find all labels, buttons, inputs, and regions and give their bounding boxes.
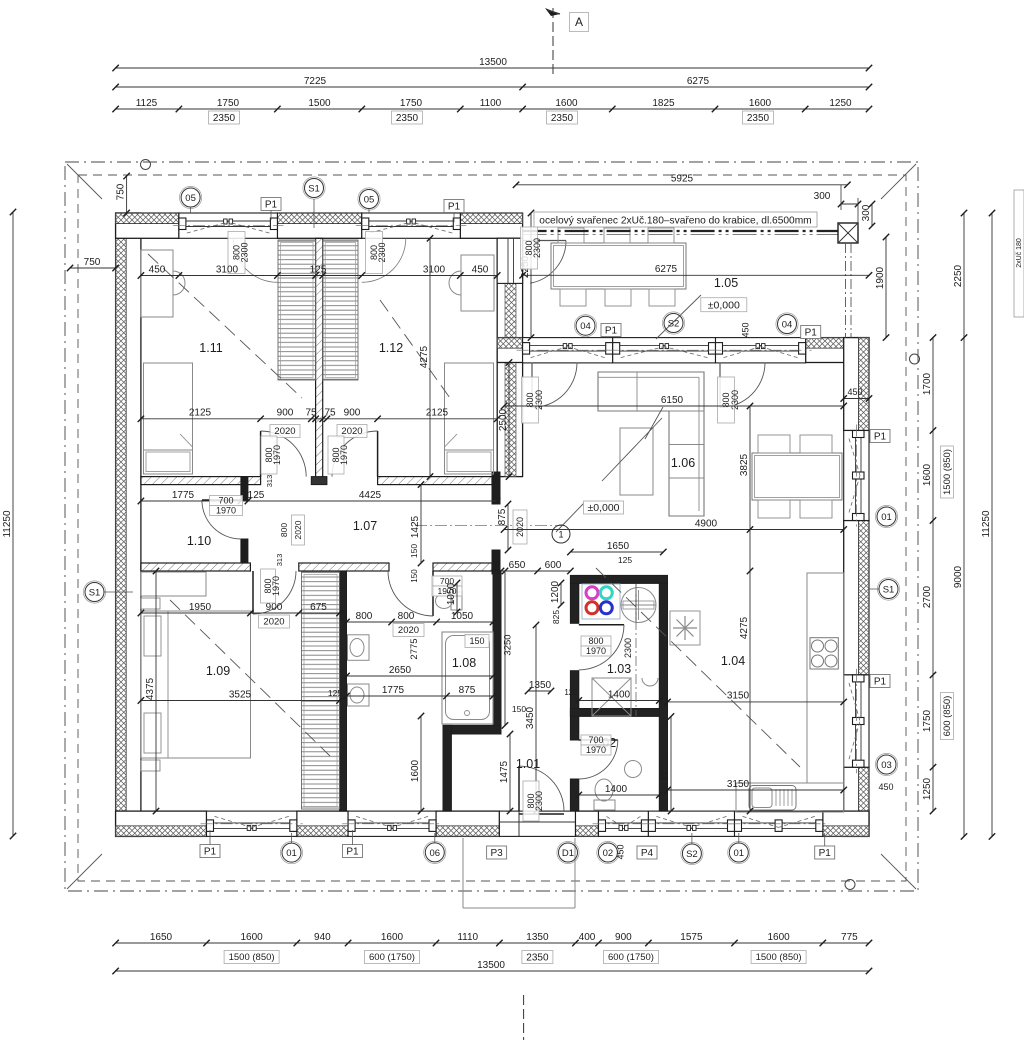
svg-text:2300: 2300 — [534, 791, 544, 811]
svg-text:P1: P1 — [874, 432, 887, 443]
svg-text:1750: 1750 — [922, 709, 933, 732]
svg-text:S1: S1 — [308, 183, 320, 194]
svg-text:150: 150 — [469, 636, 484, 646]
svg-text:1970: 1970 — [271, 576, 281, 596]
svg-text:1050: 1050 — [451, 611, 474, 622]
svg-text:1250: 1250 — [922, 777, 933, 800]
svg-text:05: 05 — [364, 194, 375, 205]
svg-text:450: 450 — [878, 782, 893, 792]
svg-text:2300: 2300 — [240, 242, 250, 262]
svg-text:900: 900 — [344, 408, 361, 419]
svg-text:2350: 2350 — [396, 113, 419, 124]
svg-text:1.07: 1.07 — [353, 519, 377, 533]
svg-text:P1: P1 — [819, 848, 832, 859]
svg-text:1775: 1775 — [172, 490, 195, 501]
svg-text:6275: 6275 — [655, 264, 678, 275]
svg-text:2300: 2300 — [623, 638, 633, 658]
svg-text:1825: 1825 — [652, 98, 675, 109]
svg-text:P1: P1 — [346, 847, 359, 858]
svg-text:1.11: 1.11 — [199, 341, 222, 355]
svg-text:1750: 1750 — [400, 98, 423, 109]
svg-text:1500 (850): 1500 (850) — [229, 952, 275, 963]
svg-text:775: 775 — [841, 932, 858, 943]
svg-text:01: 01 — [881, 512, 892, 523]
svg-text:1110: 1110 — [457, 932, 478, 943]
svg-text:13500: 13500 — [477, 960, 505, 971]
svg-text:1600: 1600 — [555, 98, 578, 109]
svg-text:150: 150 — [410, 569, 419, 583]
svg-text:P4: P4 — [641, 848, 654, 859]
svg-text:700: 700 — [218, 496, 233, 506]
svg-text:450: 450 — [741, 322, 751, 337]
svg-text:2700: 2700 — [922, 585, 933, 608]
svg-text:1.03: 1.03 — [607, 662, 631, 676]
svg-text:2125: 2125 — [189, 408, 212, 419]
svg-text:1970: 1970 — [586, 646, 606, 656]
svg-text:125: 125 — [310, 264, 327, 275]
svg-text:600: 600 — [545, 560, 562, 571]
svg-text:3150: 3150 — [727, 691, 750, 702]
svg-text:1700: 1700 — [922, 372, 933, 395]
svg-text:875: 875 — [497, 508, 508, 525]
svg-text:2500: 2500 — [498, 408, 509, 431]
svg-text:1200: 1200 — [550, 580, 561, 603]
svg-text:S2: S2 — [668, 318, 680, 329]
svg-text:75: 75 — [305, 408, 317, 419]
svg-text:600 (850): 600 (850) — [942, 696, 953, 737]
svg-text:A: A — [575, 15, 583, 29]
svg-text:1600: 1600 — [922, 463, 933, 486]
svg-text:1425: 1425 — [410, 515, 421, 538]
svg-text:1.08: 1.08 — [452, 656, 476, 670]
svg-text:6150: 6150 — [661, 395, 684, 406]
svg-text:3525: 3525 — [229, 689, 252, 700]
svg-text:1900: 1900 — [875, 266, 886, 289]
svg-text:2350: 2350 — [526, 952, 549, 963]
svg-text:1600: 1600 — [410, 759, 421, 782]
svg-text:4375: 4375 — [145, 677, 156, 700]
svg-text:3100: 3100 — [216, 264, 239, 275]
svg-text:P1: P1 — [204, 847, 217, 858]
svg-text:313: 313 — [265, 475, 274, 488]
svg-text:825: 825 — [551, 610, 561, 624]
svg-text:1.01: 1.01 — [516, 757, 540, 771]
svg-text:1.10: 1.10 — [187, 534, 211, 548]
svg-text:1.05: 1.05 — [714, 276, 738, 290]
svg-text:125: 125 — [248, 490, 265, 501]
svg-text:800: 800 — [588, 636, 603, 646]
svg-text:1350: 1350 — [529, 680, 552, 691]
svg-text:04: 04 — [782, 319, 793, 330]
svg-text:2300: 2300 — [534, 390, 544, 410]
svg-text:6275: 6275 — [687, 76, 710, 87]
svg-text:2020: 2020 — [398, 625, 419, 636]
svg-text:1100: 1100 — [480, 98, 502, 109]
svg-text:875: 875 — [459, 685, 476, 696]
svg-text:1.09: 1.09 — [206, 664, 230, 678]
svg-text:1650: 1650 — [607, 541, 630, 552]
svg-text:1500 (850): 1500 (850) — [756, 952, 802, 963]
svg-text:2350: 2350 — [213, 113, 236, 124]
svg-text:03: 03 — [881, 760, 892, 771]
svg-text:7225: 7225 — [304, 76, 327, 87]
svg-text:2650: 2650 — [389, 665, 412, 676]
svg-text:1725: 1725 — [660, 758, 671, 781]
svg-text:±0,000: ±0,000 — [708, 299, 740, 311]
svg-text:13500: 13500 — [479, 57, 507, 68]
svg-text:900: 900 — [277, 408, 294, 419]
svg-text:1500 (850): 1500 (850) — [942, 449, 953, 495]
svg-text:1970: 1970 — [216, 506, 236, 516]
svg-text:1600: 1600 — [240, 932, 263, 943]
svg-text:450: 450 — [472, 264, 489, 275]
svg-text:600 (1750): 600 (1750) — [608, 952, 654, 963]
svg-text:9000: 9000 — [953, 565, 964, 588]
svg-text:940: 940 — [314, 932, 331, 943]
svg-text:800: 800 — [279, 523, 289, 537]
svg-text:4275: 4275 — [739, 616, 750, 639]
svg-text:2300: 2300 — [730, 390, 740, 410]
svg-text:5925: 5925 — [671, 174, 694, 185]
svg-text:1775: 1775 — [382, 685, 405, 696]
svg-text:2020: 2020 — [341, 426, 362, 437]
svg-text:05: 05 — [185, 193, 196, 204]
svg-text:1600: 1600 — [749, 98, 772, 109]
svg-text:313: 313 — [275, 554, 284, 567]
svg-text:1125: 1125 — [136, 98, 158, 109]
svg-text:800: 800 — [398, 611, 415, 622]
svg-text:800: 800 — [356, 611, 373, 622]
svg-text:900: 900 — [615, 932, 632, 943]
svg-text:700: 700 — [588, 735, 603, 745]
svg-text:1400: 1400 — [605, 784, 628, 795]
svg-text:01: 01 — [286, 848, 297, 859]
svg-text:1500: 1500 — [308, 98, 331, 109]
svg-text:300: 300 — [861, 204, 872, 221]
svg-text:1475: 1475 — [499, 760, 510, 783]
svg-text:P1: P1 — [265, 200, 278, 211]
svg-text:01: 01 — [734, 848, 745, 859]
svg-text:2300: 2300 — [532, 238, 542, 258]
svg-text:2xUč 180: 2xUč 180 — [1016, 238, 1023, 268]
svg-text:04: 04 — [580, 321, 591, 332]
svg-text:600 (1750): 600 (1750) — [369, 952, 415, 963]
svg-text:2020: 2020 — [274, 426, 295, 437]
svg-text:±0,000: ±0,000 — [587, 502, 619, 514]
svg-text:1400: 1400 — [608, 689, 631, 700]
svg-text:P1: P1 — [605, 326, 618, 337]
svg-text:1575: 1575 — [680, 932, 703, 943]
svg-text:S1: S1 — [883, 584, 895, 595]
svg-text:750: 750 — [84, 257, 101, 268]
svg-text:2125: 2125 — [426, 408, 449, 419]
svg-text:D1: D1 — [562, 848, 574, 859]
svg-text:06: 06 — [430, 848, 441, 859]
svg-text:2020: 2020 — [263, 617, 284, 628]
svg-text:3250: 3250 — [503, 634, 514, 655]
svg-text:P3: P3 — [490, 848, 503, 859]
svg-text:450: 450 — [847, 387, 862, 397]
svg-text:1650: 1650 — [150, 932, 173, 943]
svg-text:1.04: 1.04 — [721, 654, 745, 668]
svg-text:4275: 4275 — [419, 345, 430, 368]
svg-text:1970: 1970 — [586, 745, 606, 755]
svg-text:2020: 2020 — [515, 517, 525, 537]
svg-text:1350: 1350 — [526, 932, 549, 943]
svg-text:4900: 4900 — [695, 518, 718, 529]
svg-text:1.06: 1.06 — [671, 456, 695, 470]
svg-text:1: 1 — [558, 530, 563, 540]
svg-text:1970: 1970 — [272, 445, 282, 465]
svg-text:1950: 1950 — [189, 602, 212, 613]
svg-text:1250: 1250 — [829, 98, 852, 109]
svg-text:2020: 2020 — [293, 520, 303, 539]
svg-text:675: 675 — [310, 602, 327, 613]
svg-text:400: 400 — [579, 932, 596, 943]
svg-text:125: 125 — [564, 688, 578, 697]
svg-text:P1: P1 — [448, 202, 461, 213]
svg-text:450: 450 — [616, 844, 626, 859]
svg-text:4425: 4425 — [359, 490, 382, 501]
svg-text:1.12: 1.12 — [379, 341, 403, 355]
svg-text:3825: 3825 — [739, 453, 750, 476]
svg-text:3450: 3450 — [525, 706, 536, 729]
svg-text:75: 75 — [324, 408, 336, 419]
svg-text:750: 750 — [115, 183, 126, 200]
svg-text:3150: 3150 — [727, 779, 750, 790]
svg-text:125: 125 — [328, 688, 342, 698]
svg-text:11250: 11250 — [2, 510, 13, 538]
svg-text:S1: S1 — [89, 587, 101, 598]
svg-text:1600: 1600 — [767, 932, 790, 943]
svg-text:150: 150 — [409, 544, 419, 558]
svg-text:P1: P1 — [874, 677, 887, 688]
svg-text:650: 650 — [509, 560, 526, 571]
svg-text:450: 450 — [149, 264, 166, 275]
svg-text:1050: 1050 — [446, 582, 457, 605]
svg-text:ocelový svařenec 2xUč.180–svař: ocelový svařenec 2xUč.180–svařeno do kra… — [539, 216, 811, 227]
svg-text:1750: 1750 — [217, 98, 240, 109]
svg-text:300: 300 — [814, 191, 831, 202]
svg-text:P1: P1 — [805, 328, 818, 339]
svg-text:2775: 2775 — [409, 638, 420, 659]
svg-text:900: 900 — [266, 602, 283, 613]
svg-text:3100: 3100 — [423, 264, 446, 275]
svg-text:125: 125 — [618, 555, 632, 565]
svg-text:1600: 1600 — [381, 932, 404, 943]
svg-text:1970: 1970 — [339, 445, 349, 465]
svg-text:02: 02 — [603, 848, 614, 859]
svg-text:2250: 2250 — [953, 264, 964, 287]
svg-text:S2: S2 — [686, 849, 698, 860]
svg-text:2300: 2300 — [377, 242, 387, 262]
svg-text:11250: 11250 — [981, 510, 992, 538]
svg-text:2350: 2350 — [747, 113, 770, 124]
svg-text:2350: 2350 — [551, 113, 574, 124]
